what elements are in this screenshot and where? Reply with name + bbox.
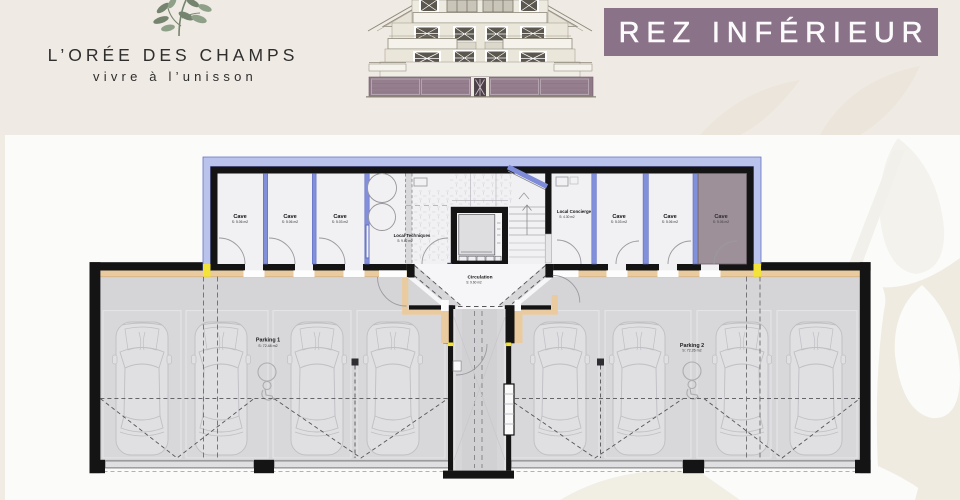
svg-text:L’ORÉE DES CHAMPS: L’ORÉE DES CHAMPS [48,45,299,65]
svg-text:S: 5.06 m2: S: 5.06 m2 [282,220,299,224]
svg-text:S: 9.62 m2: S: 9.62 m2 [397,239,413,243]
svg-text:vivre à l’unisson: vivre à l’unisson [93,69,257,84]
svg-text:Local Concierge: Local Concierge [557,209,592,214]
svg-text:S: 72.48 m2: S: 72.48 m2 [258,344,277,348]
svg-text:S: 5.06 m2: S: 5.06 m2 [713,220,730,224]
svg-text:S: 5.03 m2: S: 5.03 m2 [611,220,628,224]
svg-text:S: 5.06 m2: S: 5.06 m2 [662,220,679,224]
svg-text:S: 72.26 m2: S: 72.26 m2 [682,349,701,353]
svg-text:S: 5.06 m2: S: 5.06 m2 [232,220,249,224]
svg-text:Parking 1: Parking 1 [256,338,280,344]
svg-text:REZ INFÉRIEUR: REZ INFÉRIEUR [619,16,930,49]
svg-text:S: 4.30 m2: S: 4.30 m2 [559,215,575,219]
svg-text:S: 5.03 m2: S: 5.03 m2 [332,220,349,224]
svg-text:S: 9.60 m2: S: 9.60 m2 [466,281,482,285]
